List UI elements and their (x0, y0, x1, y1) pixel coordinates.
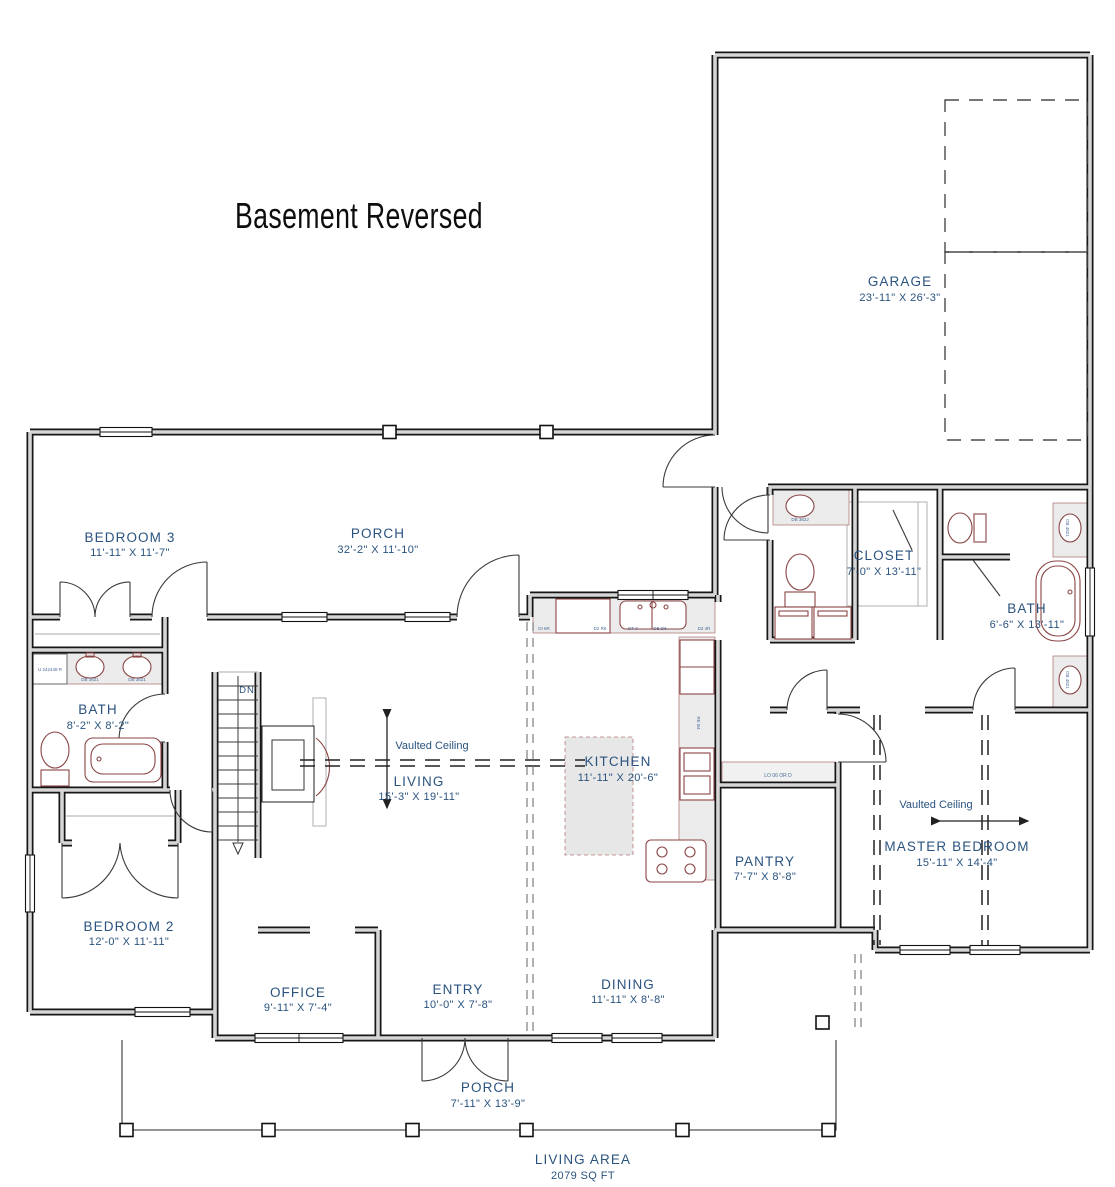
room-label-porch-top: PORCH (351, 526, 405, 541)
ceiling-break-lines (300, 100, 1087, 1034)
code-drop-zone: LO 06 OR D (764, 773, 792, 779)
code-fridge: RE B4 (696, 716, 701, 730)
sink (76, 656, 104, 678)
porch-post (822, 1124, 835, 1137)
porch-post (520, 1124, 533, 1137)
room-label-dining: DINING (601, 977, 655, 992)
room-label-bedroom2: BEDROOM 2 (84, 919, 175, 934)
dryer (814, 607, 851, 639)
room-dims-bedroom3: 11'-11" X 11'-7" (90, 547, 170, 559)
room-label-master-bath: BATH (1007, 601, 1046, 616)
toilet-tank (974, 514, 986, 542)
porch-post (540, 426, 553, 439)
tub (85, 738, 161, 782)
room-dims-kitchen: 11'-11" X 20'-6" (578, 772, 658, 784)
room-label-entry: ENTRY (432, 982, 483, 997)
porch-post (120, 1124, 133, 1137)
fixtures (41, 495, 1081, 882)
toilet (948, 513, 972, 543)
porch-post (383, 426, 396, 439)
code-cabinet: DI 6R (538, 626, 550, 631)
kitchen-sink (620, 601, 686, 629)
code-sink: DB 3621 (128, 677, 146, 682)
room-dims-living: 15'-3" X 19'-11" (378, 791, 459, 803)
code-cabinet: D2 R6 (594, 626, 607, 631)
counters (33, 489, 1089, 880)
room-dims-garage: 23'-11" X 26'-3" (859, 292, 940, 304)
code-cabinet: DT 0 (628, 626, 638, 631)
room-label-pantry: PANTRY (735, 854, 795, 869)
code-linen: U 242448 R (38, 667, 63, 672)
plan-title: Basement Reversed (235, 195, 483, 236)
room-dims-dining: 11'-11" X 8'-8" (591, 994, 665, 1006)
room-dims-porch-bottom: 7'-11" X 13'-9" (451, 1098, 526, 1110)
range (646, 840, 706, 882)
room-dims-closet: 7'-0" X 13'-11" (847, 566, 922, 578)
fixture-codes: U 242448 R DB 3621 DB 3621 DI 6R D2 R6 D… (38, 517, 1070, 779)
room-label-garage: GARAGE (868, 274, 932, 289)
room-dims-porch-top: 32'-2" X 11'-10" (337, 544, 418, 556)
room-label-living: LIVING (394, 774, 445, 789)
walls-layer (30, 55, 1090, 1038)
room-dims-bedroom2: 12'-0" X 11'-11" (89, 936, 169, 948)
stairs (218, 672, 258, 854)
room-label-bedroom3: BEDROOM 3 (85, 530, 176, 545)
toilet-tank (785, 592, 815, 607)
stairs-down-arrow (233, 843, 243, 854)
washer (775, 607, 812, 639)
porch-post (262, 1124, 275, 1137)
room-dims-office: 9'-11" X 7'-4" (264, 1002, 332, 1014)
code-sink: DB 4621 (1065, 671, 1070, 689)
code-sink: DB 4621 (1065, 519, 1070, 537)
vaulted-ceiling-note-living: Vaulted Ceiling (395, 740, 468, 752)
room-label-master: MASTER BEDROOM (884, 839, 1029, 854)
toilet (41, 732, 69, 768)
living-area-label: LIVING AREA (535, 1152, 631, 1167)
code-sink: DB 3621 (81, 677, 99, 682)
porch-post (816, 1016, 829, 1029)
vaulted-ceiling-note-master: Vaulted Ceiling (899, 799, 972, 811)
code-cabinet: DB D6 (653, 626, 667, 631)
garage-storage-outline (945, 100, 1087, 252)
toilet-tank (41, 770, 69, 786)
room-dims-pantry: 7'-7" X 8'-8" (734, 871, 796, 883)
porch-post (676, 1124, 689, 1137)
living-area-value: 2079 SQ FT (551, 1170, 615, 1182)
porch-outline (120, 1016, 836, 1137)
fireplace (262, 726, 314, 802)
garage-storage-outline (945, 252, 1087, 440)
floor-plan-drawing: Basement Reversed GARAGE 23'-11" X 26'-3… (0, 0, 1115, 1187)
code-cabinet: D2 4R (698, 626, 712, 631)
room-dims-master-bath: 6'-6" X 13'-11" (990, 619, 1065, 631)
sink (123, 656, 151, 678)
room-dims-bath2: 8'-2" X 8'-2" (67, 720, 129, 732)
windows (26, 426, 1095, 1043)
floor-plan: Basement Reversed GARAGE 23'-11" X 26'-3… (0, 0, 1115, 1187)
room-dims-entry: 10'-0" X 7'-8" (424, 999, 493, 1011)
porch-post (406, 1124, 419, 1137)
toilet (786, 554, 814, 590)
code-sink: DB 362J (791, 517, 808, 522)
sink (786, 495, 814, 517)
wall-ovens (680, 748, 714, 800)
room-label-kitchen: KITCHEN (585, 754, 652, 769)
room-label-bath2: BATH (78, 702, 117, 717)
doors (60, 435, 1015, 1081)
room-label-closet: CLOSET (854, 548, 915, 563)
stairs-dn-label: DN (239, 685, 255, 696)
room-dims-master: 15'-11" X 14'-4" (916, 857, 997, 869)
room-label-office: OFFICE (270, 985, 326, 1000)
room-label-porch-bottom: PORCH (461, 1080, 515, 1095)
